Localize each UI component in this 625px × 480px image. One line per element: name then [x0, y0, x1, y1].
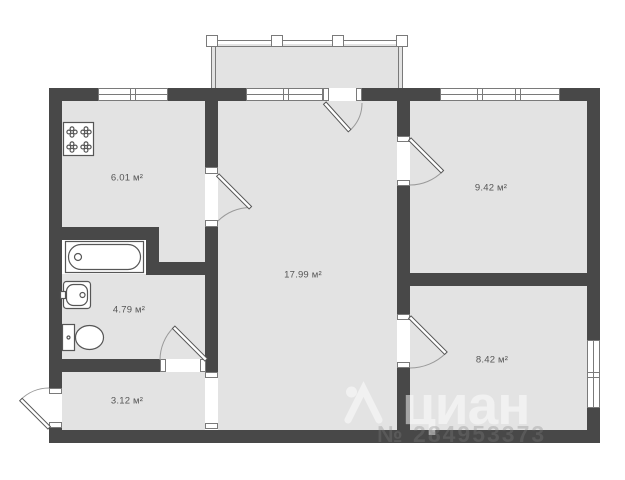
- wall-top-2: [168, 88, 246, 101]
- entrance-door: [20, 388, 51, 429]
- room-bottom-right-area-label: 8.42 м²: [476, 355, 508, 366]
- kitchen-door-opening: [205, 173, 218, 221]
- wall-between-right-rooms: [410, 273, 587, 286]
- room-top-right-area-label: 9.42 м²: [475, 183, 507, 194]
- balcony-door-opening: [323, 88, 362, 101]
- wall-bathroom-bottom: [62, 359, 160, 372]
- living-room-area-label: 17.99 м²: [284, 270, 322, 281]
- wall-kitchen-living-1: [205, 101, 218, 173]
- room-bottom-right-door-opening: [397, 315, 410, 368]
- wall-right-1: [587, 88, 600, 340]
- entrance-door-opening: [49, 388, 62, 428]
- wall-kitchen-living-2: [205, 221, 218, 372]
- hallway-living-opening: [205, 372, 218, 430]
- kitchen-window-opening: [98, 88, 168, 101]
- wall-kitchen-bottom: [62, 227, 159, 240]
- wall-bathroom-corner: [206, 359, 218, 372]
- wall-bath-niche-horizontal: [146, 262, 218, 275]
- wall-top-3: [362, 88, 440, 101]
- watermark-listing-id: № 284953373: [377, 423, 546, 446]
- kitchen-area-label: 6.01 м²: [111, 173, 143, 184]
- wall-living-rooms-1: [397, 101, 410, 137]
- balcony-floor-area: [212, 44, 402, 88]
- wall-left-1: [49, 88, 62, 388]
- balcony-window-opening: [246, 88, 323, 101]
- room-bottom-right-window-opening: [587, 340, 600, 408]
- wall-living-rooms-2: [397, 185, 410, 315]
- bathroom-area-label: 4.79 м²: [113, 305, 145, 316]
- bathroom-door-opening: [160, 359, 206, 372]
- floor-plan: 6.01 м² 9.42 м² 17.99 м² 4.79 м² 8.42 м²…: [0, 0, 625, 480]
- room-top-right-door-opening: [397, 137, 410, 185]
- room-top-right-window-opening: [440, 88, 560, 101]
- hallway-area-label: 3.12 м²: [111, 396, 143, 407]
